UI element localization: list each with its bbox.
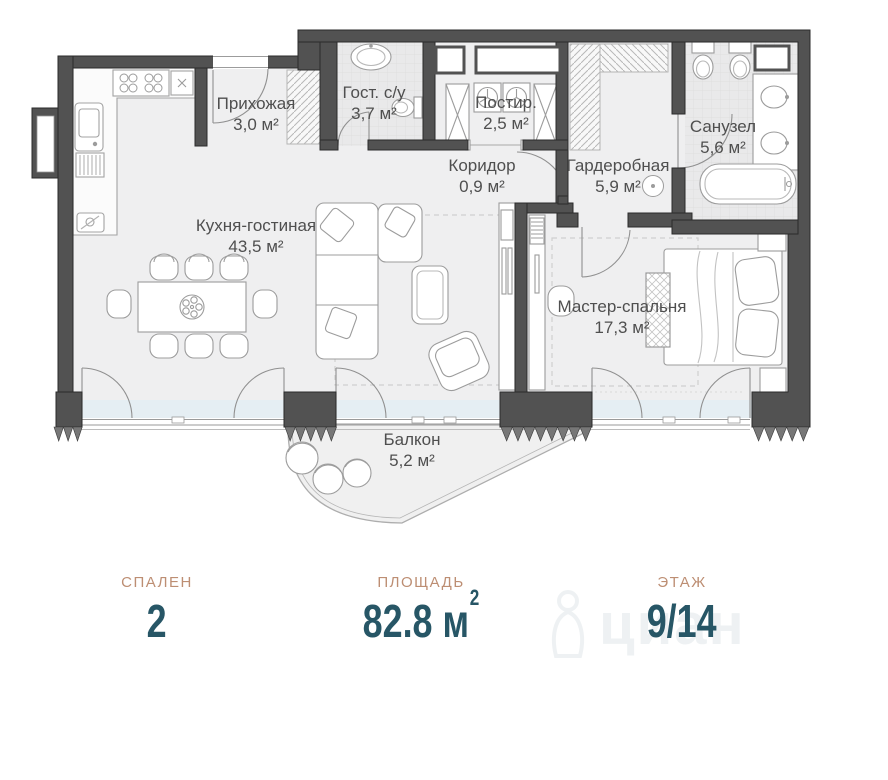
room-area: 3,7 м² [342,103,405,124]
room-name: Мастер-спальня [557,297,686,316]
room-name: Коридор [448,156,515,175]
room-label-sanuzel: Санузел 5,6 м² [690,116,756,158]
room-name: Постир. [475,93,537,112]
floorplan-page: Прихожая 3,0 м² Гост. с/у 3,7 м² Постир.… [0,0,888,780]
room-label-prihozhaya: Прихожая 3,0 м² [217,93,296,135]
room-name: Кухня-гостиная [196,216,316,235]
room-name: Гост. с/у [342,83,405,102]
room-label-koridor: Коридор 0,9 м² [448,155,515,197]
stat-floor-value: 9/14 [637,598,728,644]
room-label-balkon: Балкон 5,2 м² [383,429,440,471]
room-label-master-spalnya: Мастер-спальня 17,3 м² [557,296,686,338]
stats-bar: СПАЛЕН 2 ПЛОЩАДЬ 82.8 м2 ЭТАЖ 9/14 [0,560,888,680]
room-area: 0,9 м² [448,176,515,197]
room-area: 5,9 м² [567,176,670,197]
room-area: 43,5 м² [196,236,316,257]
room-label-postir: Постир. 2,5 м² [475,92,537,134]
stat-bedrooms-label: СПАЛЕН [121,574,193,591]
room-area: 5,6 м² [690,137,756,158]
room-label-garderobnaya: Гардеробная 5,9 м² [567,155,670,197]
stat-area-label: ПЛОЩАДЬ [377,574,464,591]
room-area: 5,2 м² [383,450,440,471]
room-name: Прихожая [217,94,296,113]
room-label-gost-su: Гост. с/у 3,7 м² [342,82,405,124]
room-area: 3,0 м² [217,114,296,135]
room-area: 17,3 м² [557,317,686,338]
room-name: Балкон [383,430,440,449]
stat-bedrooms-value: 2 [144,598,171,644]
stat-area-value: 82.8 м2 [346,598,496,644]
room-area: 2,5 м² [475,113,537,134]
room-name: Гардеробная [567,156,670,175]
room-name: Санузел [690,117,756,136]
stat-floor-label: ЭТАЖ [657,574,706,591]
room-label-kuhnya-gostinaya: Кухня-гостиная 43,5 м² [196,215,316,257]
